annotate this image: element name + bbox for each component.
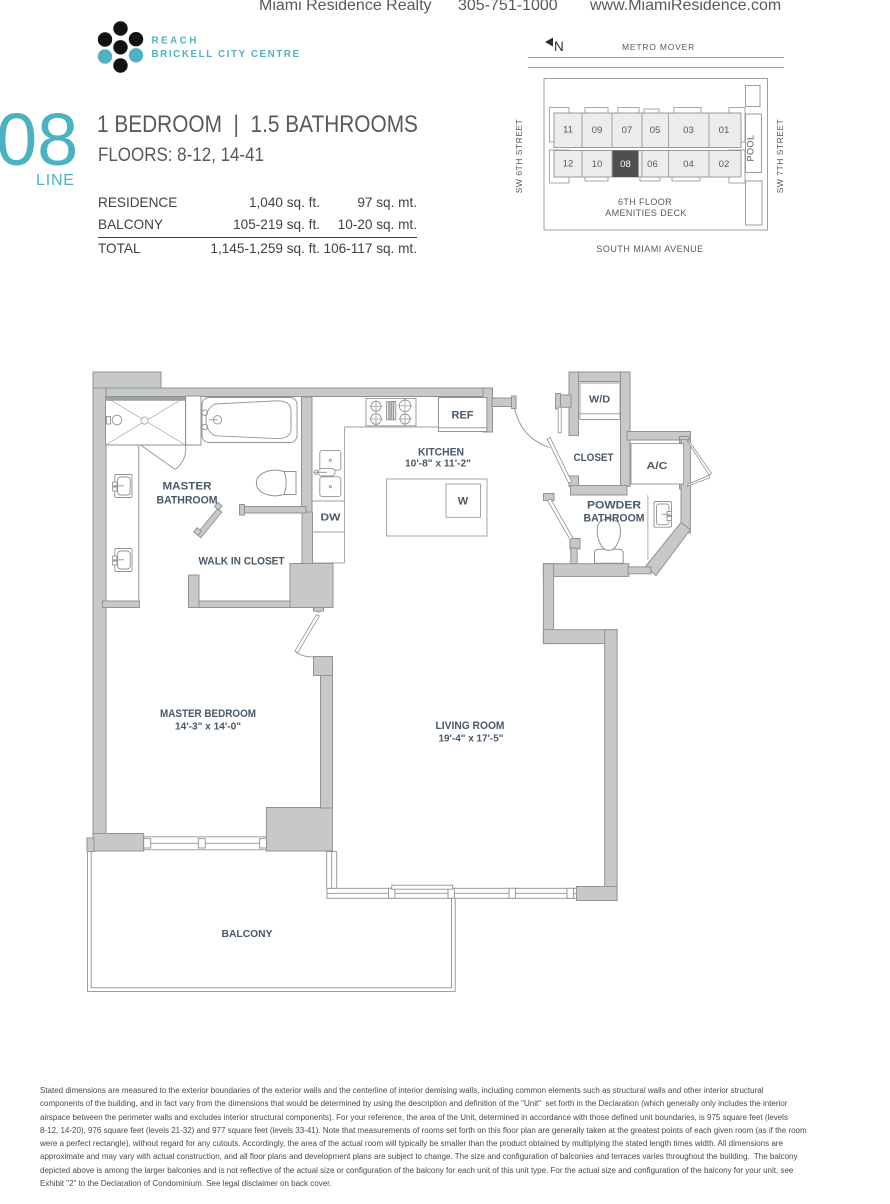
svg-text:CLOSET: CLOSET bbox=[574, 452, 614, 464]
svg-text:BATHROOM: BATHROOM bbox=[584, 513, 645, 525]
svg-text:19'-4" x 17'-5": 19'-4" x 17'-5" bbox=[439, 734, 504, 745]
svg-text:MASTER: MASTER bbox=[163, 481, 212, 493]
svg-text:10'-8" x 11'-2": 10'-8" x 11'-2" bbox=[405, 459, 471, 470]
svg-text:WALK IN CLOSET: WALK IN CLOSET bbox=[199, 556, 285, 568]
svg-text:W: W bbox=[458, 496, 469, 508]
svg-text:LIVING ROOM: LIVING ROOM bbox=[436, 720, 505, 732]
svg-text:MASTER BEDROOM: MASTER BEDROOM bbox=[160, 708, 256, 720]
svg-text:KITCHEN: KITCHEN bbox=[418, 447, 464, 459]
svg-text:POWDER: POWDER bbox=[587, 500, 641, 512]
svg-text:14'-3" x 14'-0": 14'-3" x 14'-0" bbox=[175, 722, 241, 733]
svg-text:DW: DW bbox=[321, 512, 341, 524]
svg-text:BALCONY: BALCONY bbox=[222, 929, 273, 940]
svg-text:A/C: A/C bbox=[647, 460, 668, 472]
svg-text:W/D: W/D bbox=[589, 394, 610, 406]
svg-text:REF: REF bbox=[452, 410, 474, 422]
svg-text:BATHROOM: BATHROOM bbox=[157, 495, 218, 507]
